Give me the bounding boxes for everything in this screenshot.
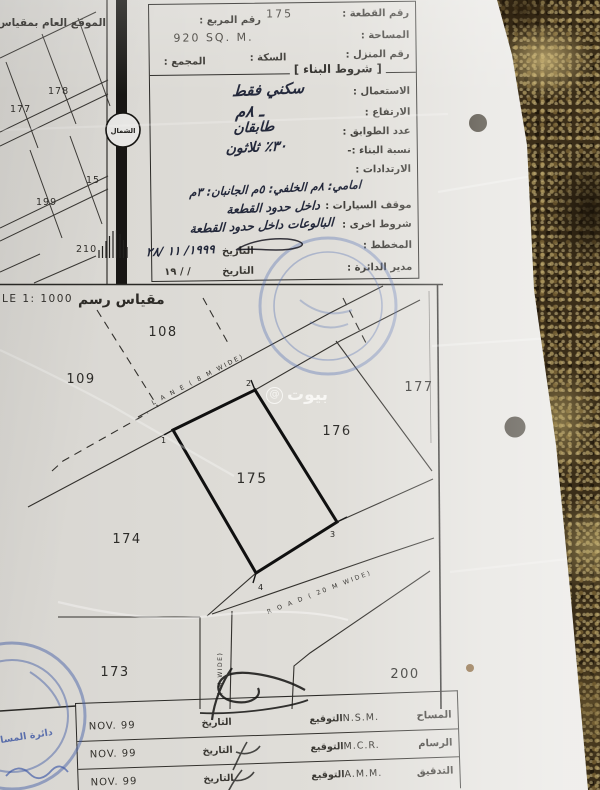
plot-no-value: 175: [266, 7, 293, 20]
signature-label: التوقيع: [288, 741, 343, 754]
map-right-border: [438, 284, 442, 709]
watermark-text: بيوت: [287, 385, 328, 405]
lane-road-label: L A N E ( 8 M WIDE): [151, 353, 246, 407]
ratio-label: نسبة البناء :-: [347, 145, 411, 157]
corner-1: 1: [161, 436, 166, 445]
surveyor-date: NOV. 99: [75, 719, 160, 733]
overview-plot-177: 177: [10, 104, 31, 115]
director-label: مدير الدائرة :: [347, 262, 412, 274]
round-stamp-text: دائرة المسا: [0, 727, 53, 746]
other-conditions-label: شروط اخرى :: [342, 219, 412, 231]
surveyor-initials: N.S.M.: [342, 711, 399, 724]
overview-map-title: الموقع العام بمقياس: [0, 17, 106, 29]
site-plan-map: 1 2 3 4 108 109 177 176 175 174 173 200 …: [0, 283, 448, 709]
director-date-label: التاريخ: [222, 266, 254, 277]
date-label: التاريخ: [160, 717, 232, 730]
signature-space: [234, 776, 290, 778]
height-label: الارتفاع :: [365, 107, 411, 119]
north-label: الشمال: [111, 127, 136, 135]
watermark: @ بيوت: [266, 385, 328, 405]
planner-date-label: التاريخ: [222, 246, 254, 257]
hole-punch-top: [469, 114, 487, 132]
floors-label: عدد الطوابق :: [342, 126, 410, 138]
map-border-double-line: [429, 291, 431, 443]
plot-label-109: 109: [66, 372, 95, 387]
checker-initials: A.M.M.: [344, 767, 401, 780]
use-label: الاستعمال :: [353, 86, 410, 98]
plot-label-174: 174: [112, 532, 141, 547]
signatures-table: المساح N.S.M. التوقيع التاريخ NOV. 99 ال…: [75, 690, 461, 790]
date-label: التاريخ: [161, 745, 233, 758]
overview-plot-199: 199: [36, 197, 57, 208]
plot-info-table: رقم القطعة : 175 رقم المربع : المساحة : …: [148, 1, 419, 282]
corner-2: 2: [246, 379, 251, 388]
area-label: المساحة :: [361, 30, 410, 42]
house-no-label: رقم المنزل :: [346, 49, 410, 61]
document-paper: الشمال الموقع العام بمقياس 177 178 199 1…: [0, 0, 600, 790]
overview-plot-15: 15: [86, 175, 100, 186]
plot-label-176: 176: [322, 424, 351, 439]
date-label: التاريخ: [161, 773, 233, 786]
corner-3: 3: [330, 530, 335, 539]
side-road-label: ( M WIDE): [217, 652, 224, 695]
signature-space: [233, 748, 289, 750]
planner-date-value: ١٩٩٩/ ١١ /٢٨: [146, 242, 215, 259]
draftsman-date: NOV. 99: [76, 747, 161, 761]
checker-date: NOV. 99: [76, 775, 161, 789]
surveyor-label: المساح: [399, 709, 457, 722]
complex-label: المجمع :: [164, 56, 206, 68]
overview-map: الشمال الموقع العام بمقياس 177 178 199 1…: [0, 0, 148, 284]
signature-label: التوقيع: [289, 769, 344, 782]
signature-space: [232, 720, 288, 722]
street-label: السكة :: [250, 52, 287, 63]
map-boundary-lines: [28, 286, 434, 709]
overview-plot-210: 210: [76, 244, 97, 255]
floors-value: طابقان: [233, 119, 275, 137]
brown-spot: [466, 664, 474, 672]
square-no-label: رقم المربع :: [199, 15, 261, 27]
plot-label-173: 173: [100, 665, 129, 680]
plot-label-175: 175: [236, 471, 267, 487]
setbacks-value: امامي: ٨م الخلفي: ٥م الجانبان: ٣م: [189, 177, 361, 199]
parking-value: داخل حدود القطعة: [227, 198, 321, 216]
director-date-value: ١٩ / /: [164, 266, 191, 277]
use-value: سكني فقط: [232, 79, 305, 100]
checker-label: التدقيق: [401, 765, 459, 778]
building-conditions-title: [ شروط البناء ]: [290, 61, 386, 76]
other-conditions-value: البالوعات داخل حدود القطعة: [190, 215, 334, 236]
overview-plot-178: 178: [48, 86, 69, 97]
plot-label-177: 177: [404, 380, 433, 395]
hole-punch-middle: [505, 417, 526, 438]
scanned-land-survey-document: الشمال الموقع العام بمقياس 177 178 199 1…: [0, 0, 600, 790]
setbacks-label: الارتدادات :: [355, 164, 411, 176]
parking-label: موقف السيارات :: [325, 200, 411, 212]
scale-text-en: LE 1: 1000: [2, 293, 73, 305]
plot-no-label: رقم القطعة :: [342, 8, 409, 20]
draftsman-label: الرسام: [400, 737, 458, 750]
draftsman-initials: M.C.R.: [343, 739, 400, 752]
ratio-value: ٣٠٪ ثلاثون: [225, 138, 287, 157]
plot-label-108: 108: [148, 325, 177, 340]
planner-label: المخطط :: [363, 240, 412, 252]
plot-label-200: 200: [390, 667, 419, 682]
blue-handwriting: [6, 766, 68, 778]
scale-text-ar: مقياس رسم: [78, 292, 165, 308]
overview-street-lines: [0, 12, 110, 283]
signature-label: التوقيع: [288, 713, 343, 726]
watermark-at-icon: @: [266, 387, 283, 404]
area-value: 920 SQ. M.: [173, 31, 253, 45]
corner-4: 4: [258, 583, 263, 592]
